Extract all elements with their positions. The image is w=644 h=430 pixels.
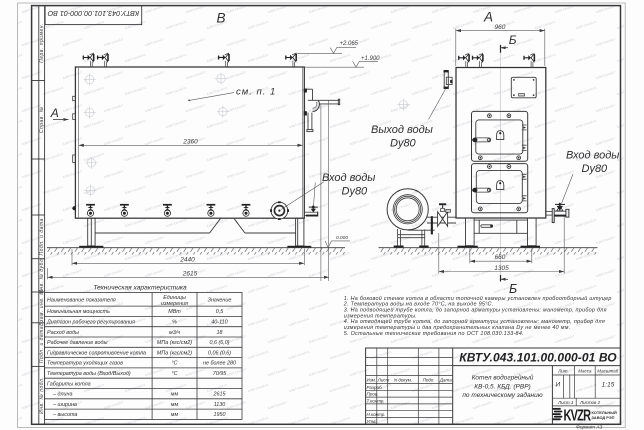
svg-text:мм: мм xyxy=(171,412,179,418)
svg-text:°С: °С xyxy=(171,361,177,367)
svg-text:Справ. №: Справ. № xyxy=(39,106,45,133)
svg-text:Номинальная мощность: Номинальная мощность xyxy=(47,309,110,315)
svg-text:не более 280: не более 280 xyxy=(203,361,236,367)
svg-text:18: 18 xyxy=(217,330,223,336)
svg-text:А: А xyxy=(483,10,493,25)
svg-text:660: 660 xyxy=(495,254,506,261)
svg-text:Подп.: Подп. xyxy=(423,378,435,383)
svg-text:Листов 2: Листов 2 xyxy=(579,400,601,405)
svg-text:Дата: Дата xyxy=(439,378,452,383)
svg-text:1305: 1305 xyxy=(494,265,509,272)
svg-text:0,6 (6,0): 0,6 (6,0) xyxy=(209,340,229,346)
svg-text:Выход воды: Выход воды xyxy=(371,124,433,136)
svg-text:Вход воды: Вход воды xyxy=(566,149,619,161)
svg-text:Подп. и дата: Подп. и дата xyxy=(39,218,45,255)
svg-text:2615: 2615 xyxy=(182,271,198,278)
svg-text:5. Остальные технические треб: 5. Остальные технические требования по О… xyxy=(344,331,524,337)
svg-text:°С: °С xyxy=(171,371,177,377)
svg-text:Лит.: Лит. xyxy=(557,368,569,373)
svg-text:40-110: 40-110 xyxy=(211,320,227,326)
svg-text:– ширина: – ширина xyxy=(52,402,77,408)
svg-text:0,06 (0,6): 0,06 (0,6) xyxy=(208,350,231,356)
svg-text:Лист 1: Лист 1 xyxy=(557,400,574,405)
svg-text:Dy80: Dy80 xyxy=(342,186,369,198)
svg-text:Разраб.: Разраб. xyxy=(367,385,383,390)
svg-text:Рабочее давление воды: Рабочее давление воды xyxy=(47,340,107,346)
svg-text:А: А xyxy=(50,106,59,120)
svg-text:Лист: Лист xyxy=(377,378,390,383)
svg-text:КВТУ.043.101.00.000-01 ВО: КВТУ.043.101.00.000-01 ВО xyxy=(459,351,617,365)
svg-text:0.000: 0.000 xyxy=(336,235,348,241)
svg-text:+2.065: +2.065 xyxy=(340,41,359,47)
svg-text:Температура воды (Вход/Выход): Температура воды (Вход/Выход) xyxy=(47,371,131,377)
svg-text:КОТЕЛЬНЫЙ: КОТЕЛЬНЫЙ xyxy=(592,410,618,415)
svg-text:МПа (кгс/см2): МПа (кгс/см2) xyxy=(157,350,192,356)
svg-text:Б: Б xyxy=(509,33,517,47)
svg-text:Температура уходящих газов: Температура уходящих газов xyxy=(47,361,123,367)
svg-text:Техническая характеристика: Техническая характеристика xyxy=(93,285,187,292)
svg-text:70/95: 70/95 xyxy=(213,371,227,377)
svg-text:Расход воды: Расход воды xyxy=(47,330,79,336)
svg-text:Взам. инв. №: Взам. инв. № xyxy=(39,289,45,326)
svg-text:мм: мм xyxy=(171,402,179,408)
svg-text:Гидравлическое сопротивление к: Гидравлическое сопротивление котла xyxy=(47,350,146,356)
svg-text:КВТУ.043.101.00.000-01 ВО: КВТУ.043.101.00.000-01 ВО xyxy=(47,9,139,18)
svg-text:Котел водогрейный: Котел водогрейный xyxy=(472,374,534,382)
svg-text:1:15: 1:15 xyxy=(602,381,615,388)
svg-text:Габариты котла: Габариты котла xyxy=(47,381,91,387)
svg-text:Формат А3: Формат А3 xyxy=(576,425,603,430)
svg-text:измерения: измерения xyxy=(161,301,188,307)
svg-text:N докум.: N докум. xyxy=(394,378,412,383)
svg-text:Утв.: Утв. xyxy=(367,419,377,424)
svg-text:см. п. 1: см. п. 1 xyxy=(236,87,276,98)
svg-text:Изм.: Изм. xyxy=(367,378,377,383)
svg-text:Значение: Значение xyxy=(208,298,232,304)
svg-text:Диапазон рабочего регулировани: Диапазон рабочего регулирования xyxy=(46,320,135,326)
svg-text:960: 960 xyxy=(495,24,506,31)
svg-text:м3/ч: м3/ч xyxy=(169,330,180,336)
svg-text:Т.контр.: Т.контр. xyxy=(367,398,385,403)
svg-text:2360: 2360 xyxy=(182,139,198,146)
svg-text:Вход воды: Вход воды xyxy=(322,172,375,184)
svg-text:Dy80: Dy80 xyxy=(582,163,609,175)
svg-text:по техническому заданию: по техническому заданию xyxy=(462,391,542,399)
svg-text:Н.контр.: Н.контр. xyxy=(367,412,386,417)
svg-text:%: % xyxy=(172,320,177,326)
svg-text:2440: 2440 xyxy=(179,257,195,264)
svg-text:0,5: 0,5 xyxy=(216,309,224,315)
svg-text:Перв. примен.: Перв. примен. xyxy=(39,23,45,63)
svg-text:КВ-0,5. КБД. (РВР): КВ-0,5. КБД. (РВР) xyxy=(474,383,530,390)
svg-text:Инв. № подл.: Инв. № подл. xyxy=(39,377,45,414)
svg-text:Масштаб: Масштаб xyxy=(597,368,618,373)
svg-text:1130: 1130 xyxy=(214,402,226,408)
svg-text:– высота: – высота xyxy=(52,412,77,418)
svg-text:Б: Б xyxy=(509,282,517,296)
svg-text:МПа (кгс/см2): МПа (кгс/см2) xyxy=(157,340,192,346)
svg-text:Масса: Масса xyxy=(578,368,592,373)
svg-text:2615: 2615 xyxy=(213,392,227,398)
svg-text:– длина: – длина xyxy=(52,392,72,398)
svg-text:мм: мм xyxy=(171,392,179,398)
svg-text:Подп. и дата: Подп. и дата xyxy=(39,326,45,363)
svg-text:+1.900: +1.900 xyxy=(361,56,380,62)
svg-text:В: В xyxy=(217,11,226,26)
svg-text:Инв. № дубл.: Инв. № дубл. xyxy=(39,257,45,294)
svg-text:Пров.: Пров. xyxy=(367,392,379,397)
svg-text:KVZR: KVZR xyxy=(564,407,592,424)
svg-text:1950: 1950 xyxy=(214,412,226,418)
svg-text:Dy80: Dy80 xyxy=(390,137,417,149)
svg-text:ЗАВОД РЭП: ЗАВОД РЭП xyxy=(592,415,615,420)
svg-text:Наименование показателя: Наименование показателя xyxy=(47,298,116,304)
svg-text:И: И xyxy=(556,381,561,388)
svg-text:МВт: МВт xyxy=(168,309,181,315)
